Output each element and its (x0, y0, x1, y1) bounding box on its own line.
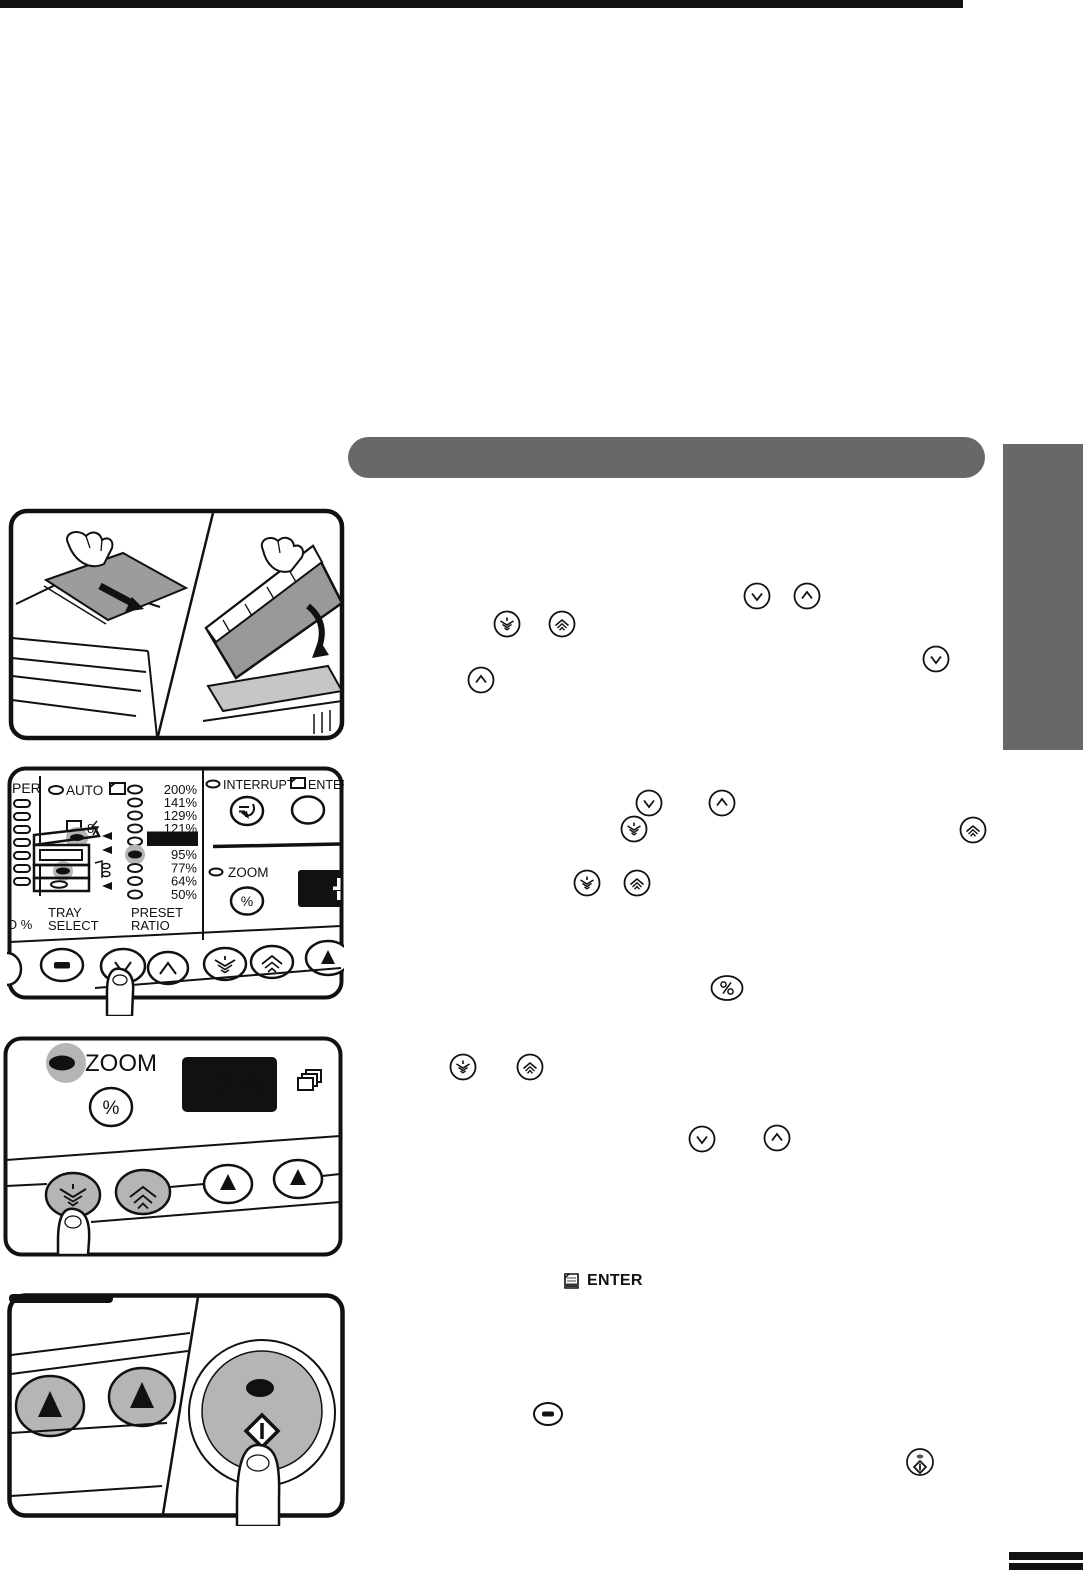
svg-text:%: % (241, 893, 253, 909)
panel-top-tab (9, 1294, 113, 1303)
percent-key: % (231, 888, 263, 915)
pressing-finger (58, 1209, 89, 1255)
zoom-down-key (204, 948, 246, 980)
start-key-icon (904, 1446, 936, 1478)
enter-indicator-note: ENTER (560, 1271, 643, 1291)
interrupt-led (207, 781, 220, 788)
zoom-up-key-icon (622, 868, 652, 898)
ratio-95-led (128, 851, 142, 859)
percent-key: % (90, 1088, 132, 1126)
page-edge-mark (1009, 1552, 1083, 1560)
ratio-up-key (148, 952, 188, 984)
up-arrow-key-icon (466, 665, 496, 695)
copy-quantity-key (204, 1165, 252, 1203)
down-arrow-key-icon (921, 644, 951, 674)
pressing-finger (237, 1445, 279, 1526)
interrupt-label: INTERRUPT (223, 778, 295, 792)
enter-page-icon (291, 778, 305, 788)
copy-quantity-key2-highlighted (109, 1368, 175, 1426)
display-value: 94 (205, 1060, 269, 1111)
percent-key-icon (709, 973, 745, 1003)
auto-label: AUTO (66, 783, 103, 798)
zoom-down-key-icon (492, 609, 522, 639)
top-rule (0, 0, 963, 8)
paper-icon (110, 783, 125, 794)
interrupt-key (231, 797, 263, 825)
auto-led (49, 786, 63, 794)
clear-key-icon (531, 1400, 565, 1428)
zoom-down-key-icon (619, 814, 649, 844)
tray-select-label2: SELECT (48, 918, 99, 933)
zoom-label: ZOOM (228, 865, 269, 880)
enter-key (292, 797, 324, 824)
zoom-led (210, 869, 223, 876)
tray-led-top (70, 834, 84, 841)
up-arrow-key-icon (792, 581, 822, 611)
up-arrow-key-icon (762, 1123, 792, 1153)
copy-quantity-key2 (274, 1160, 322, 1198)
copies-icon (298, 1070, 321, 1090)
zoom-up-key-icon (515, 1052, 545, 1082)
zoom-label: ZOOM (85, 1050, 157, 1077)
zoom-scale-partial: O % (7, 917, 33, 932)
zoom-down-key-icon (448, 1052, 478, 1082)
tray-led-bottom (51, 881, 67, 887)
page-edge-mark2 (1009, 1563, 1083, 1570)
enter-page-icon (560, 1271, 582, 1291)
zoom-up-key-highlighted (116, 1170, 170, 1214)
svg-text:50%: 50% (171, 887, 197, 902)
preset-ratio-label2: RATIO (131, 918, 170, 933)
start-key-illustration (7, 1293, 345, 1526)
zoom-display-illustration: ZOOM % 94 (3, 1036, 343, 1257)
pressing-finger (107, 969, 133, 1016)
copy-quantity-key-highlighted (16, 1376, 84, 1436)
svg-text:100%: 100% (163, 831, 197, 846)
zoom-up-key-icon (958, 815, 988, 845)
ratio-display (298, 870, 342, 907)
paper-size-led-column (14, 800, 30, 885)
chapter-side-tab (1003, 444, 1083, 750)
down-arrow-key-icon (742, 581, 772, 611)
control-panel-illustration: PER AUTO 8 (7, 766, 344, 1016)
svg-text:%: % (103, 1098, 120, 1119)
enter-note-label: ENTER (587, 1272, 643, 1290)
up-arrow-key-icon (707, 788, 737, 818)
place-originals-illustration (8, 508, 345, 741)
manual-page: PER AUTO 8 (0, 0, 1083, 1570)
enter-label: ENTER (308, 778, 344, 792)
start-led (246, 1379, 274, 1397)
paper-label-partial: PER (12, 780, 41, 796)
tray-led-mid (56, 868, 70, 875)
down-arrow-key-icon (687, 1124, 717, 1154)
section-header-bar (348, 437, 985, 478)
zoom-led (49, 1056, 75, 1071)
zoom-up-key-icon (547, 609, 577, 639)
ratio-display: 94 (182, 1057, 277, 1112)
tray-select-key (41, 949, 83, 981)
zoom-down-key-icon (572, 868, 602, 898)
